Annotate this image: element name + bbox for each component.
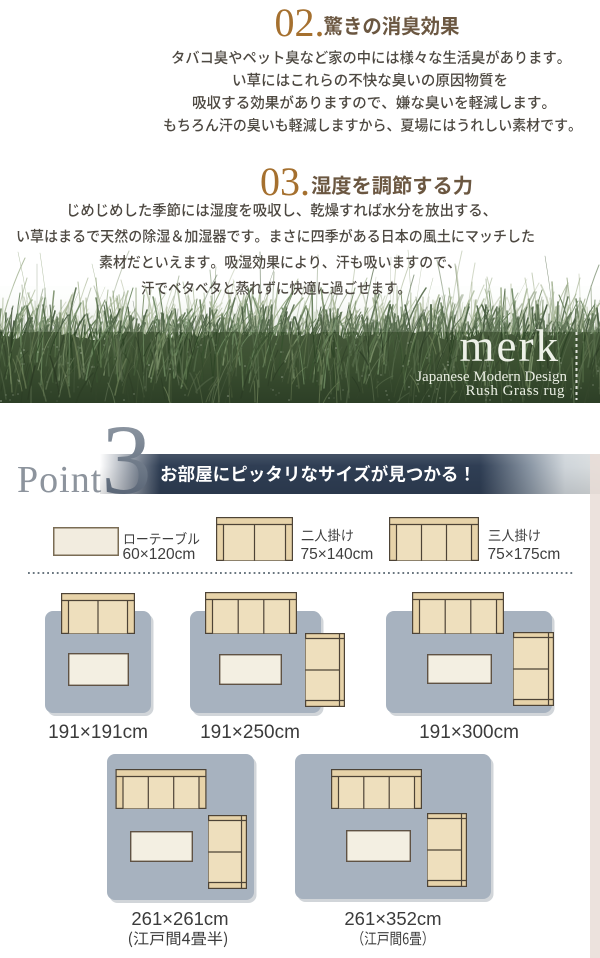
svg-text:3: 3	[102, 415, 152, 500]
